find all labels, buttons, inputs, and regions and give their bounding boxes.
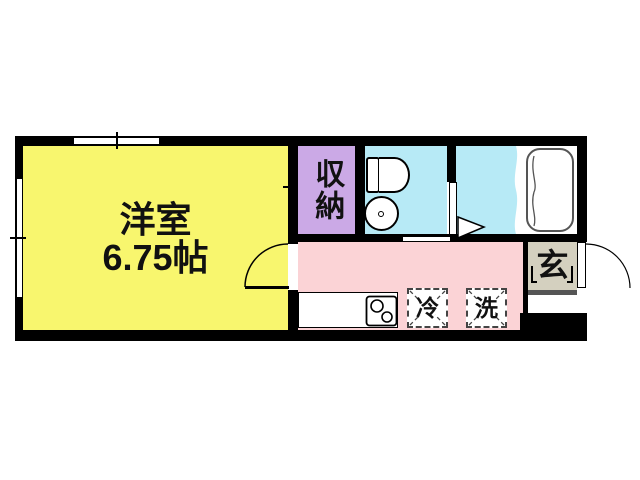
entrance-step-mark-left-foot	[531, 281, 537, 283]
wall-right-upper	[577, 136, 587, 242]
door-swing-icon-entrance	[582, 240, 634, 292]
entrance-label: 玄	[536, 249, 568, 283]
wash-basin-drain	[378, 211, 384, 217]
refrigerator-label: 冷	[416, 296, 439, 320]
refrigerator-space: 冷	[407, 288, 448, 328]
door-swing-icon-western	[242, 241, 292, 290]
western-room-name: 洋室	[102, 201, 208, 239]
wall-tick-mark	[283, 186, 291, 188]
western-room-size: 6.75帖	[102, 239, 208, 277]
floor-plan: 洋室 6.75帖 収納 玄	[0, 0, 640, 480]
washing-machine-label: 洗	[475, 296, 498, 320]
folding-door-icon	[456, 214, 488, 240]
closet-label: 収納	[311, 158, 343, 222]
entrance-step-mark-right-foot	[567, 281, 573, 283]
closet: 収納	[298, 146, 355, 234]
wall-closet-toilet	[355, 146, 365, 234]
washing-machine-space: 洗	[466, 288, 507, 328]
toilet-door-opening	[403, 236, 450, 242]
stove-icon	[365, 295, 398, 327]
window-top-tick	[116, 132, 118, 149]
bathtub-icon	[527, 149, 573, 231]
wall-room-corridor	[288, 146, 298, 330]
wall-toilet-bath	[447, 146, 456, 182]
wall-entrance-left	[523, 242, 528, 330]
toilet-icon-tank	[366, 157, 380, 193]
western-room-label: 洋室 6.75帖	[102, 201, 208, 277]
window-left-tick	[10, 237, 26, 239]
western-room: 洋室 6.75帖	[23, 146, 288, 330]
entrance-step	[528, 295, 577, 313]
wall-bottom	[15, 330, 587, 341]
toilet-icon-bowl	[379, 157, 410, 193]
